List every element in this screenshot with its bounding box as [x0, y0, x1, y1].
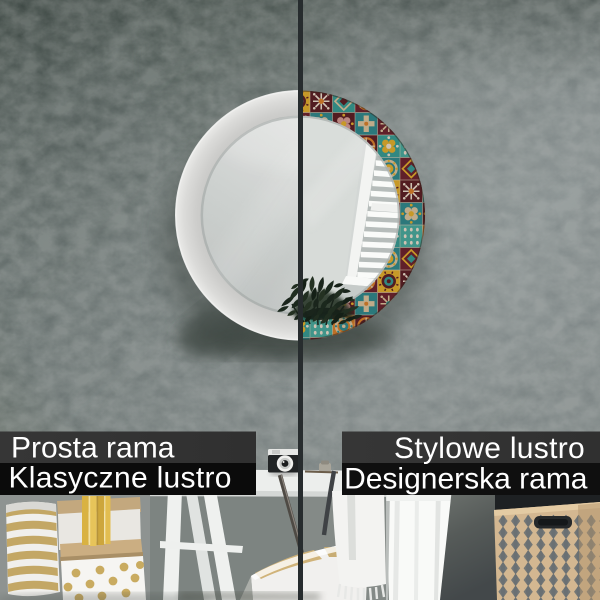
svg-text:Klasyczne lustro: Klasyczne lustro: [9, 461, 232, 494]
svg-text:Designerska rama: Designerska rama: [344, 463, 588, 496]
svg-text:Prosta rama: Prosta rama: [11, 431, 175, 464]
svg-text:Stylowe lustro: Stylowe lustro: [394, 432, 585, 465]
